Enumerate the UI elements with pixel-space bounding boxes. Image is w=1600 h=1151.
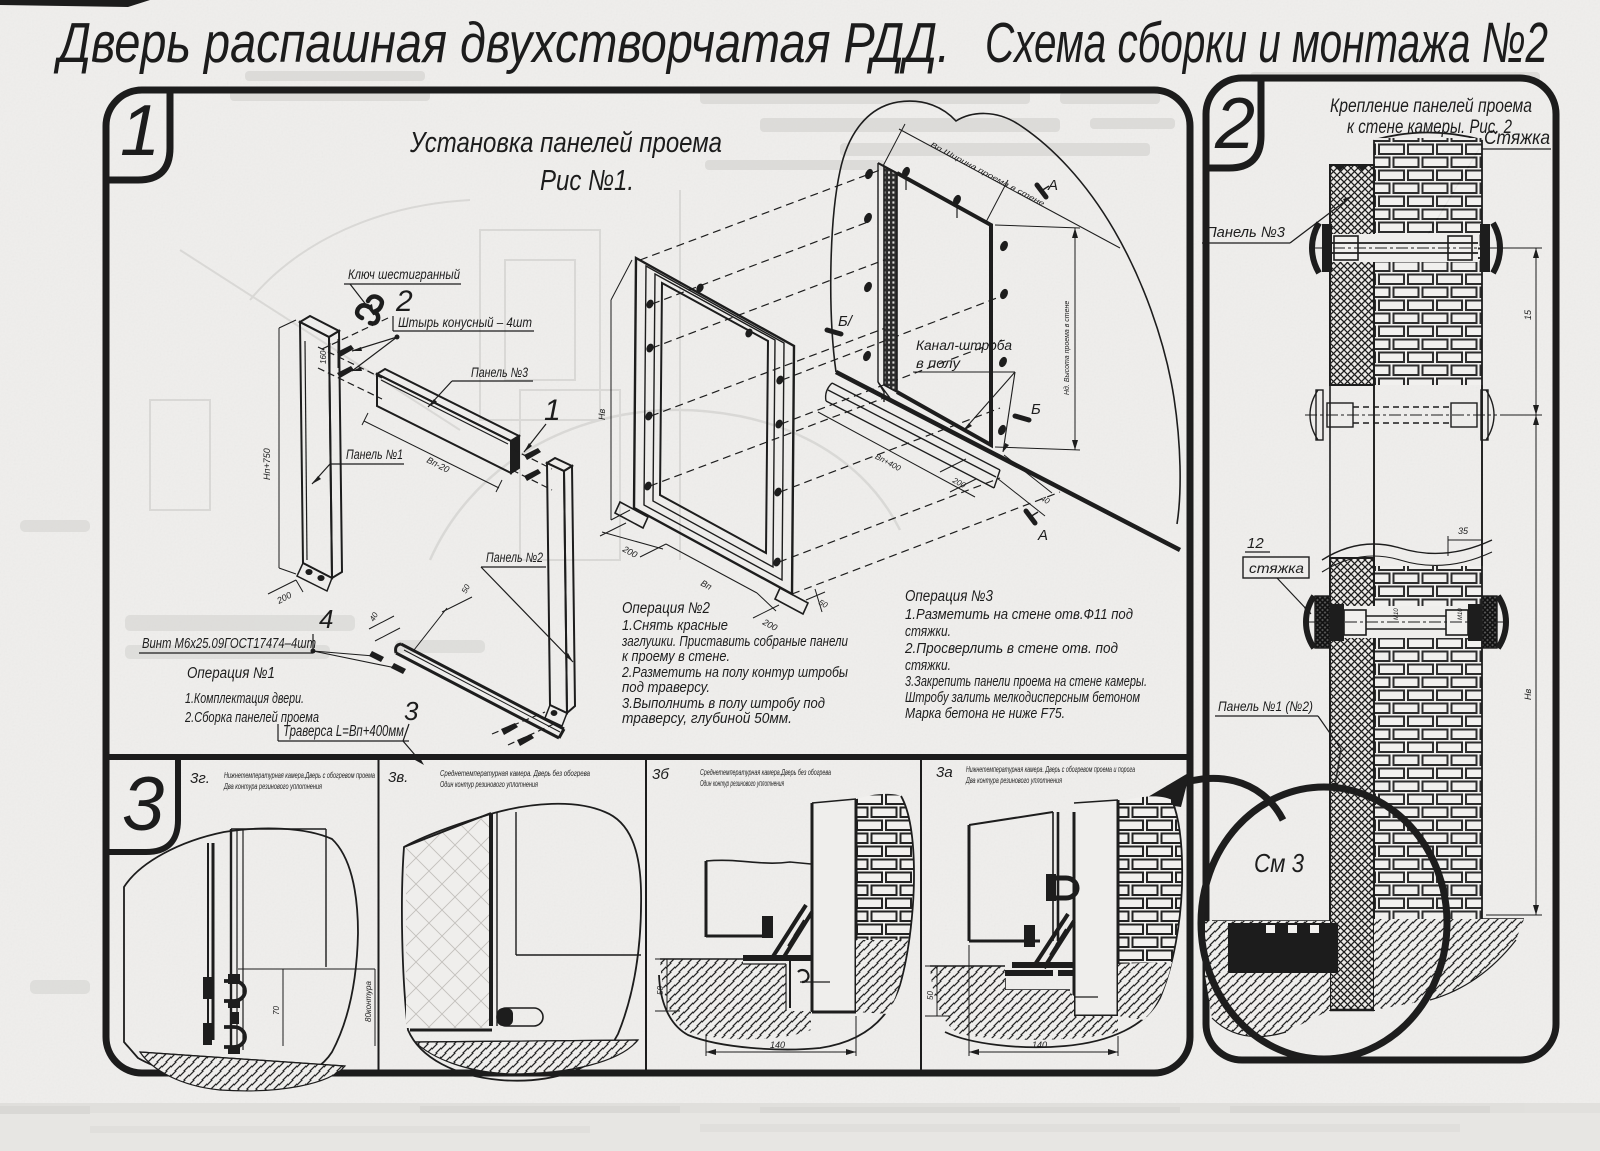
svg-text:Марка бетона не ниже F75.: Марка бетона не ниже F75. bbox=[905, 706, 1065, 722]
svg-text:160: 160 bbox=[319, 350, 328, 364]
svg-text:Панель №2: Панель №2 bbox=[486, 550, 543, 565]
svg-text:1: 1 bbox=[544, 394, 561, 427]
svg-text:3: 3 bbox=[122, 762, 164, 847]
svg-text:Схема сборки и монтажа №2: Схема сборки и монтажа №2 bbox=[985, 11, 1548, 75]
svg-text:3в.: 3в. bbox=[388, 769, 408, 786]
svg-text:к проему в стене.: к проему в стене. bbox=[622, 649, 730, 665]
svg-text:Б: Б bbox=[1031, 401, 1041, 418]
svg-text:1: 1 bbox=[120, 91, 160, 171]
svg-text:3г.: 3г. bbox=[190, 770, 210, 787]
svg-text:Штробу залить мелкодисперсным: Штробу залить мелкодисперсным бетоном bbox=[905, 690, 1140, 706]
svg-text:Стяжка: Стяжка bbox=[1484, 128, 1550, 149]
svg-text:М10: М10 bbox=[1458, 608, 1464, 620]
svg-text:в полу: в полу bbox=[916, 356, 961, 371]
svg-text:1.Разметить на стене отв.Ф11 п: 1.Разметить на стене отв.Ф11 под bbox=[905, 607, 1133, 623]
svg-text:траверсу, глубиной 50мм.: траверсу, глубиной 50мм. bbox=[622, 711, 792, 727]
svg-text:стяжки.: стяжки. bbox=[905, 658, 951, 674]
svg-text:70: 70 bbox=[272, 1006, 281, 1015]
svg-text:Два контура резинового уплотне: Два контура резинового уплотнения bbox=[223, 782, 322, 791]
svg-text:3.Закрепить панели проема на с: 3.Закрепить панели проема на стене камер… bbox=[905, 674, 1147, 690]
svg-text:А: А bbox=[1047, 177, 1058, 194]
svg-text:35: 35 bbox=[1458, 526, 1469, 536]
svg-text:140: 140 bbox=[770, 1040, 785, 1050]
svg-text:Ключ шестигранный: Ключ шестигранный bbox=[348, 267, 460, 282]
svg-text:стяжки.: стяжки. bbox=[905, 624, 951, 640]
svg-text:Нд. Высота проема в стене: Нд. Высота проема в стене bbox=[1063, 301, 1071, 395]
svg-text:Один контур резинового уплотне: Один контур резинового уплотнения bbox=[440, 780, 538, 789]
svg-text:140: 140 bbox=[1032, 1040, 1047, 1050]
svg-text:Нижнетемпературная камера. Две: Нижнетемпературная камера. Дверь с обогр… bbox=[966, 765, 1135, 774]
svg-text:50: 50 bbox=[926, 991, 935, 1000]
svg-text:Рис №1.: Рис №1. bbox=[540, 165, 634, 197]
svg-text:Операция №3: Операция №3 bbox=[905, 588, 993, 605]
svg-text:Нп+750: Нп+750 bbox=[262, 448, 272, 480]
svg-text:См 3: См 3 bbox=[1254, 848, 1304, 878]
svg-text:1.Снять красные: 1.Снять красные bbox=[622, 618, 728, 634]
svg-text:Траверса L=Вп+400мм: Траверса L=Вп+400мм bbox=[283, 723, 404, 740]
svg-text:стяжка: стяжка bbox=[1249, 560, 1304, 576]
svg-text:2: 2 bbox=[1214, 84, 1255, 164]
svg-text:1.Комплектация двери.: 1.Комплектация двери. bbox=[185, 691, 304, 707]
svg-text:3.Выполнить в полу штробу под: 3.Выполнить в полу штробу под bbox=[622, 696, 825, 712]
svg-text:Винт М6х25.09ГОСТ17474–4шт: Винт М6х25.09ГОСТ17474–4шт bbox=[142, 636, 316, 652]
svg-text:Два контура резинового уплотне: Два контура резинового уплотнения bbox=[965, 776, 1062, 785]
svg-text:15: 15 bbox=[1523, 309, 1533, 320]
svg-text:Установка панелей проема: Установка панелей проема bbox=[409, 127, 722, 159]
svg-text:под траверсу.: под траверсу. bbox=[622, 680, 710, 696]
svg-text:Среднетемпературная камера.Две: Среднетемпературная камера.Дверь без обо… bbox=[700, 768, 831, 777]
svg-text:Операция №1: Операция №1 bbox=[187, 665, 275, 682]
svg-text:50: 50 bbox=[656, 986, 665, 995]
svg-text:Б/: Б/ bbox=[838, 313, 854, 330]
svg-text:Операция №2: Операция №2 bbox=[622, 600, 710, 617]
svg-text:Один контур резинового уплотне: Один контур резинового уплотнения bbox=[700, 779, 784, 788]
svg-text:Крепление панелей проема: Крепление панелей проема bbox=[1330, 96, 1532, 117]
svg-text:Нв: Нв bbox=[1523, 689, 1533, 700]
svg-text:80контура: 80контура bbox=[364, 981, 373, 1022]
svg-text:заглушки. Приставить собраные: заглушки. Приставить собраные панели bbox=[621, 634, 848, 650]
svg-text:2.Разметить на полу контур штр: 2.Разметить на полу контур штробы bbox=[621, 665, 848, 681]
svg-text:2.Просверлить в стене отв. п: 2.Просверлить в стене отв. под bbox=[904, 641, 1118, 657]
svg-text:3: 3 bbox=[404, 696, 419, 726]
svg-text:Канал-штроба: Канал-штроба bbox=[916, 338, 1012, 353]
svg-text:Панель №1 (№2): Панель №1 (№2) bbox=[1218, 698, 1313, 714]
svg-text:Нв: Нв bbox=[597, 409, 607, 420]
svg-text:Панель №3: Панель №3 bbox=[1206, 224, 1286, 241]
svg-text:Панель №1: Панель №1 bbox=[346, 447, 403, 462]
svg-text:М10: М10 bbox=[1394, 608, 1400, 620]
svg-text:3а: 3а bbox=[936, 764, 953, 781]
svg-text:2: 2 bbox=[395, 285, 413, 318]
svg-text:Нижнетемпературная камера.Двер: Нижнетемпературная камера.Дверь с обогре… bbox=[224, 771, 375, 780]
svg-text:Дверь распашная двухстворчатая: Дверь распашная двухстворчатая РДД. bbox=[53, 11, 950, 75]
svg-text:3б: 3б bbox=[652, 766, 669, 783]
svg-text:4: 4 bbox=[319, 604, 333, 634]
svg-text:Панель №3: Панель №3 bbox=[471, 365, 528, 380]
svg-text:Штырь конусный – 4шт: Штырь конусный – 4шт bbox=[398, 315, 532, 330]
svg-text:Среднетемпературная камера. Дв: Среднетемпературная камера. Дверь без об… bbox=[440, 769, 590, 778]
svg-text:А: А bbox=[1037, 527, 1048, 544]
svg-text:12: 12 bbox=[1247, 535, 1264, 552]
